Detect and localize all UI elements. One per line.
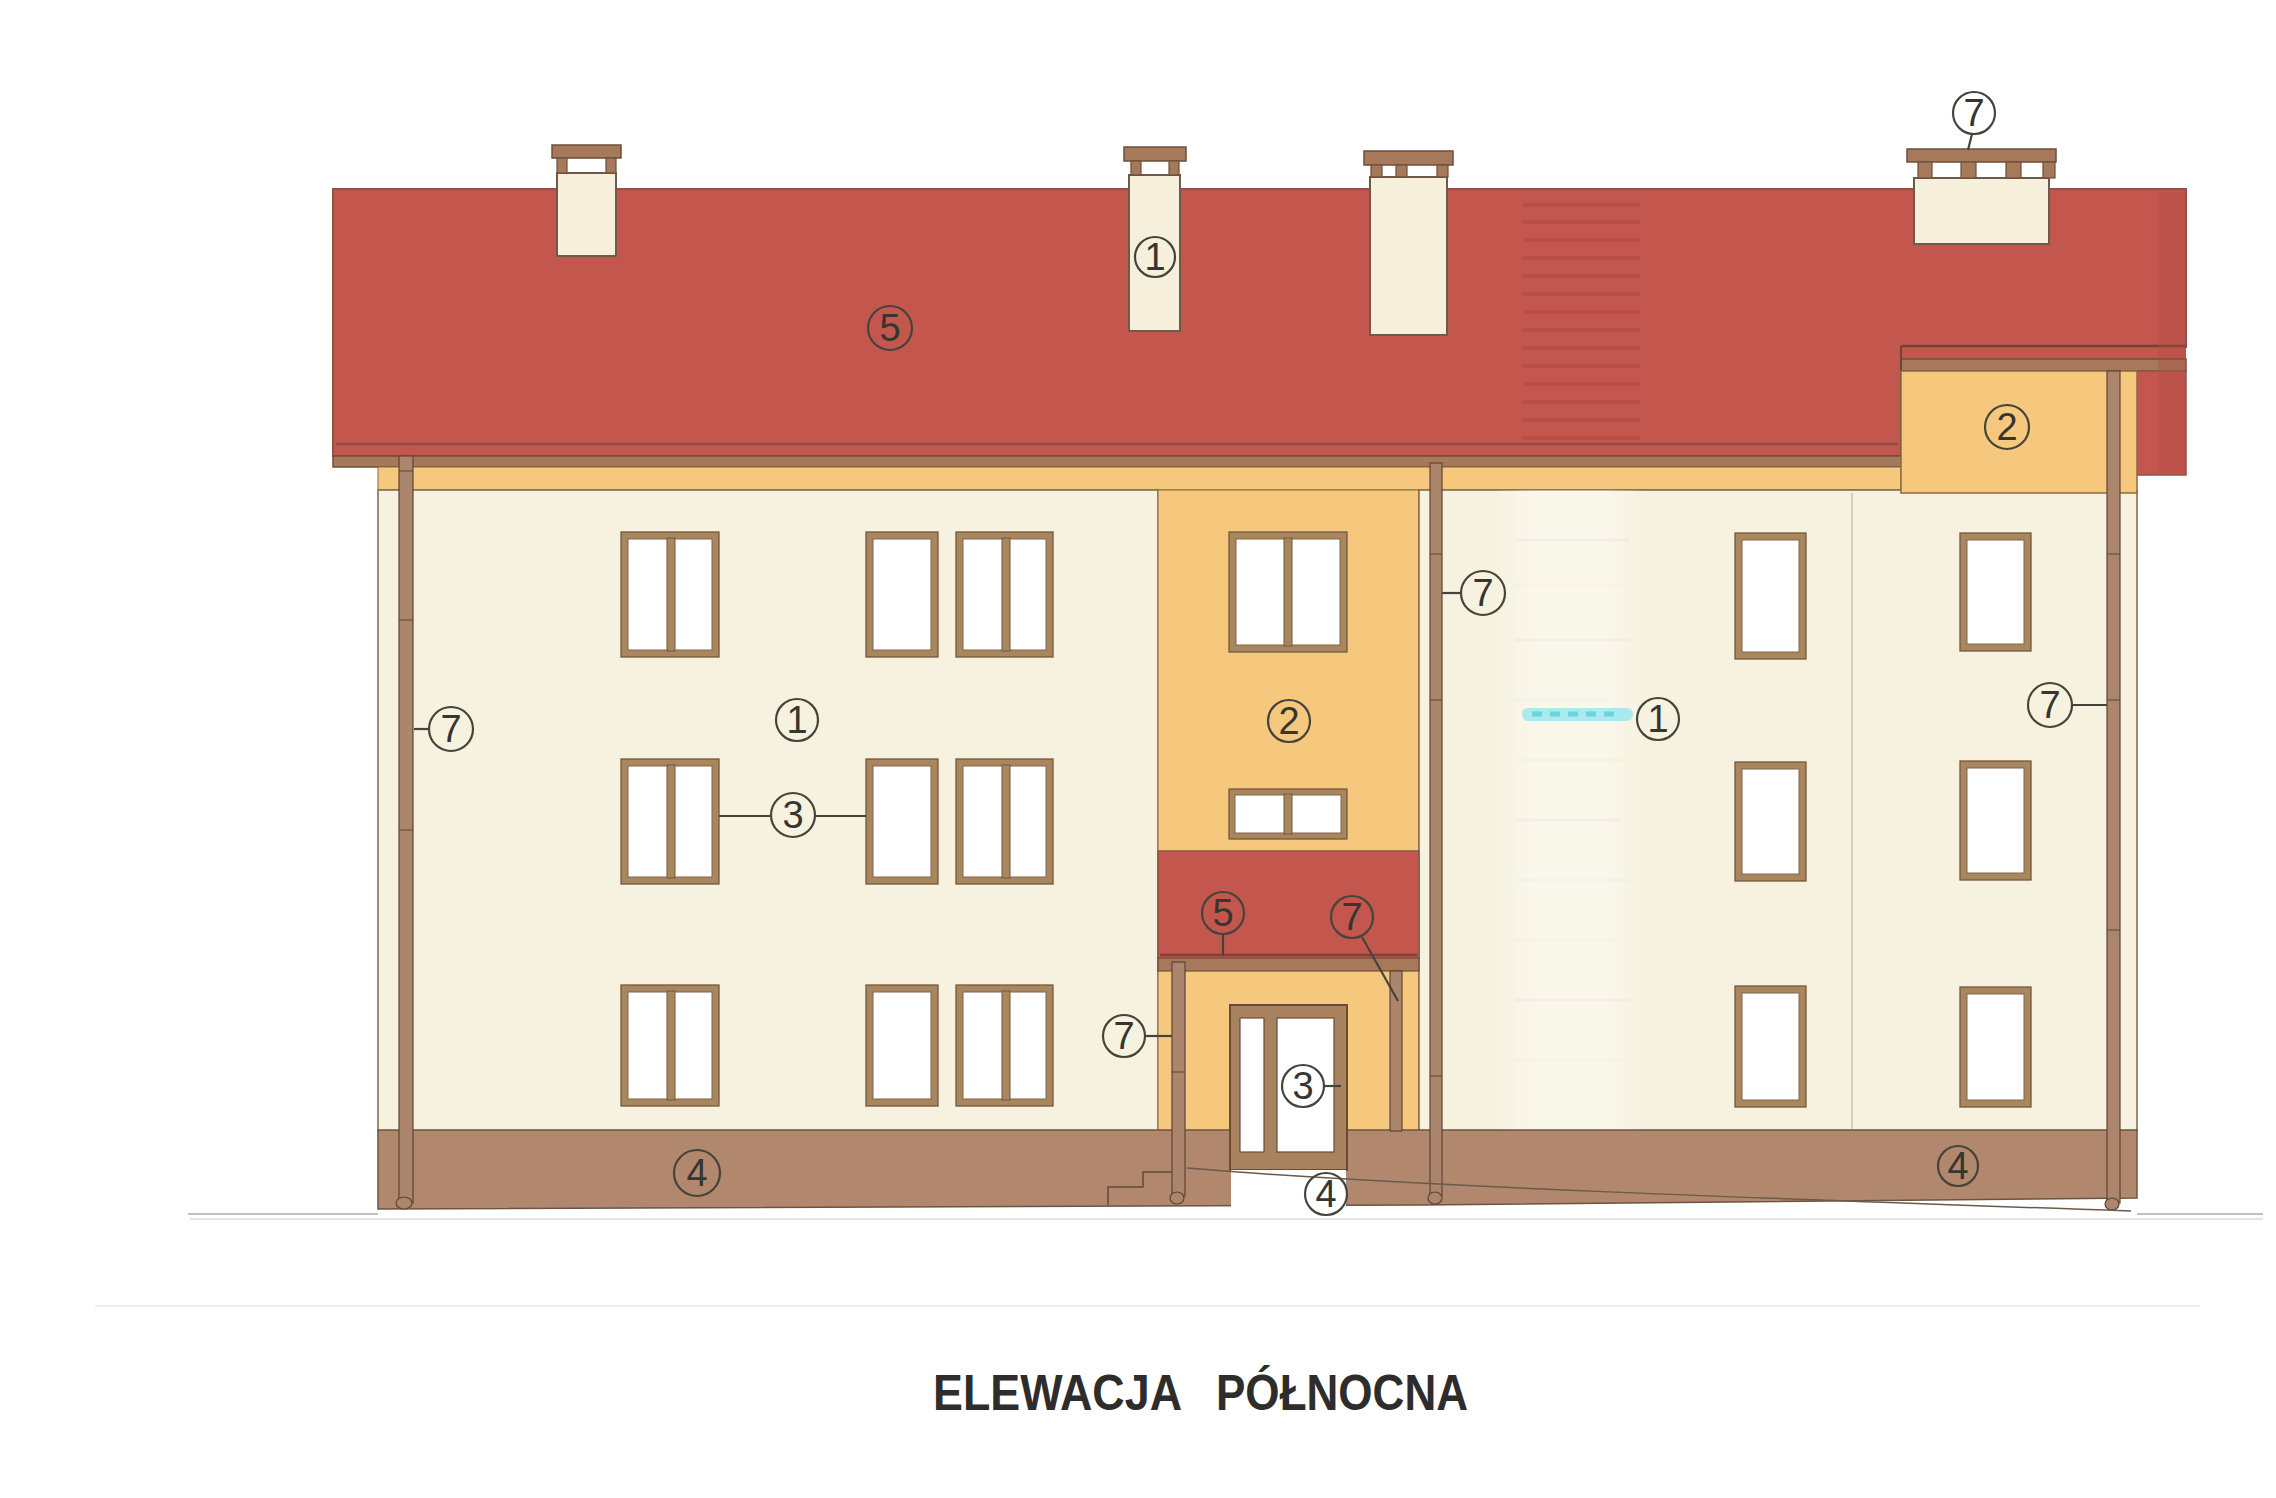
svg-text:3: 3 [1292, 1065, 1313, 1107]
svg-text:7: 7 [1113, 1015, 1134, 1057]
svg-text:5: 5 [879, 307, 900, 349]
svg-text:PÓŁNOCNA: PÓŁNOCNA [1216, 1365, 1468, 1421]
svg-text:ELEWACJA: ELEWACJA [933, 1365, 1182, 1421]
svg-text:4: 4 [1315, 1173, 1336, 1215]
svg-text:1: 1 [1647, 698, 1668, 740]
svg-text:5: 5 [1212, 892, 1233, 934]
svg-text:7: 7 [440, 708, 461, 750]
svg-text:4: 4 [686, 1152, 707, 1194]
svg-text:7: 7 [2039, 684, 2060, 726]
svg-text:7: 7 [1472, 572, 1493, 614]
svg-text:4: 4 [1947, 1145, 1968, 1187]
svg-text:1: 1 [1144, 236, 1165, 278]
svg-text:2: 2 [1278, 700, 1299, 742]
svg-text:2: 2 [1996, 406, 2017, 448]
svg-text:1: 1 [786, 699, 807, 741]
svg-text:7: 7 [1341, 896, 1362, 938]
svg-text:7: 7 [1963, 92, 1984, 134]
svg-text:3: 3 [782, 794, 803, 836]
